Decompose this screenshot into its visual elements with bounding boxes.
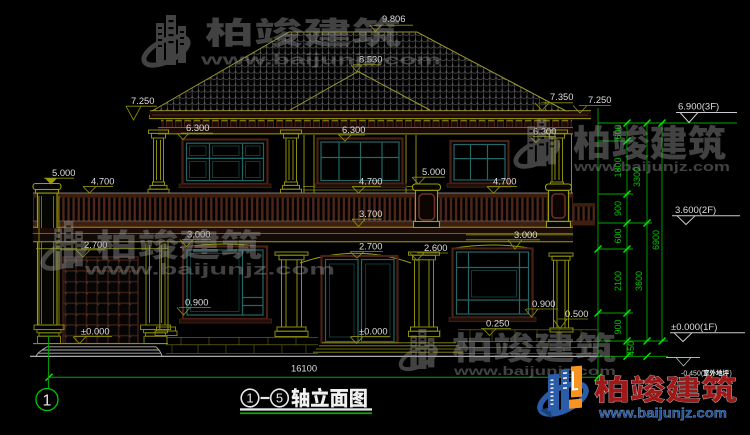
svg-text:0.250: 0.250 xyxy=(486,318,509,329)
svg-text:16100: 16100 xyxy=(291,363,317,374)
svg-text:2.700: 2.700 xyxy=(359,241,382,252)
svg-text:7.250: 7.250 xyxy=(588,94,611,105)
svg-text:6.300: 6.300 xyxy=(342,124,365,135)
svg-text:±0.000: ±0.000 xyxy=(359,326,388,337)
svg-text:www.baijunjz.com: www.baijunjz.com xyxy=(573,159,730,174)
svg-text:5.000: 5.000 xyxy=(52,167,75,178)
svg-text:0.900: 0.900 xyxy=(185,297,208,308)
svg-text:900: 900 xyxy=(613,201,623,216)
svg-text:4.700: 4.700 xyxy=(493,176,516,187)
svg-text:2.600: 2.600 xyxy=(424,242,447,253)
svg-text:3600: 3600 xyxy=(634,271,644,291)
svg-text:6.900(3F): 6.900(3F) xyxy=(678,102,719,113)
svg-text:5.000: 5.000 xyxy=(422,166,445,177)
svg-text:6.300: 6.300 xyxy=(186,122,209,133)
svg-text:2100: 2100 xyxy=(613,271,623,291)
svg-text:6900: 6900 xyxy=(651,230,661,250)
svg-text:1: 1 xyxy=(246,391,253,406)
svg-text:7.350: 7.350 xyxy=(550,91,573,102)
svg-text:1: 1 xyxy=(43,393,52,410)
svg-text:7.250: 7.250 xyxy=(131,95,154,106)
svg-text:www.baijunjz.com: www.baijunjz.com xyxy=(452,366,616,378)
svg-text:3.600(2F): 3.600(2F) xyxy=(675,205,716,216)
svg-text:5: 5 xyxy=(276,391,283,406)
svg-text:www.baijunjz.com: www.baijunjz.com xyxy=(598,406,727,421)
svg-text:www.baijunjz.com: www.baijunjz.com xyxy=(83,262,335,279)
svg-text:0.900: 0.900 xyxy=(532,298,555,309)
svg-text:±0.000(1F): ±0.000(1F) xyxy=(671,322,717,333)
svg-text:-0.450(: -0.450( xyxy=(681,371,704,378)
svg-text:±0.000: ±0.000 xyxy=(81,326,110,337)
svg-text:4.700: 4.700 xyxy=(91,176,114,187)
svg-text:450: 450 xyxy=(626,341,636,356)
svg-text:3.000: 3.000 xyxy=(514,229,537,240)
svg-text:4.700: 4.700 xyxy=(359,176,382,187)
svg-text:): ) xyxy=(730,371,732,378)
svg-text:www.baijunjz.com: www.baijunjz.com xyxy=(199,53,441,69)
svg-text:0.500: 0.500 xyxy=(565,308,588,319)
svg-text:600: 600 xyxy=(613,228,623,243)
svg-text:900: 900 xyxy=(613,319,623,334)
svg-text:3.700: 3.700 xyxy=(359,208,382,219)
